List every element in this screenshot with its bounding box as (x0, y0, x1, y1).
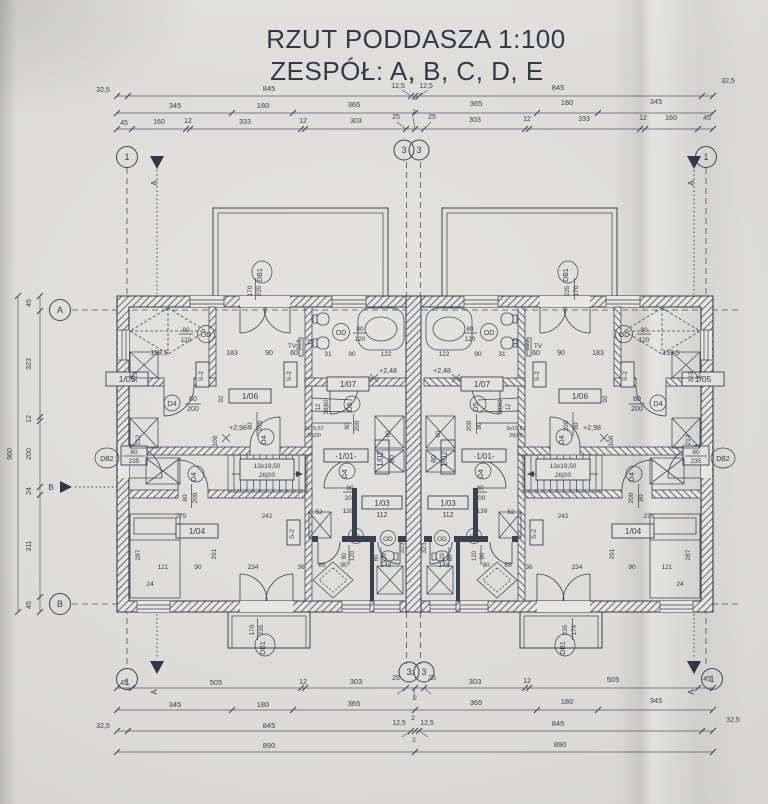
label-dims-left-6: 45 (26, 601, 33, 609)
bed-pillow (134, 518, 176, 534)
label-doors-d4-w: 80 (476, 485, 484, 492)
label-doors-db1-h: 235 (564, 285, 571, 296)
label-dims-i-v121: 121 (662, 564, 673, 571)
label-dims-left-0: 45 (26, 299, 33, 307)
label-dims-top3-5: 303 (350, 118, 362, 125)
label-doors-d4-h: 200 (257, 420, 264, 431)
label-doors-db1-h: 235 (256, 285, 263, 296)
label-dims-i-v52: 52 (507, 509, 515, 516)
label-dims-i-v139: 139 (477, 508, 488, 515)
label-doors-db2-w: 80 (130, 449, 138, 456)
label-doors-od-w: 80 (480, 552, 486, 559)
label-dims-bot1-8: 12 (523, 678, 531, 685)
label-rooms-r102: 1/02 (376, 451, 385, 467)
label-dims-i-v148: 148 (439, 562, 450, 569)
label-doors-d4-code: D4 (259, 435, 268, 445)
label-stairs-main-tread: 26|00 (259, 472, 276, 479)
label-dims-i-v159: 159,5 (150, 350, 168, 357)
label-doors-od-h: 120 (465, 336, 476, 343)
label-dims-i-v92: 92 (218, 395, 225, 403)
label-dims-bot2-2: 365 (348, 699, 361, 708)
label-doors-d4-h: 200 (187, 406, 199, 413)
label-dims-top2-1: 180 (257, 101, 270, 110)
label-dims-i-v223: 223 (296, 339, 303, 350)
label-dims-top1-0: 32,5 (96, 87, 110, 94)
label-sections-a: A (150, 689, 159, 695)
label-dims-i-v275: 275 (644, 513, 655, 520)
label-dims-i-v80: 80 (431, 455, 438, 463)
label-dims-top3-6: 25 (392, 114, 400, 121)
label-dims-i-v242: 242 (558, 513, 569, 520)
toilet (317, 313, 329, 325)
label-doors-d5-h: 200 (354, 420, 361, 431)
label-doors-d4-code: D4 (627, 472, 636, 482)
label-dims-i-v36: 36 (297, 564, 305, 571)
label-dims-i-v3860: 38|60 (498, 399, 504, 415)
label-dims-i-v323: 323 (399, 542, 406, 553)
label-dims-i-v148: 148 (381, 562, 392, 569)
label-doors-d4-w: 80 (182, 494, 189, 502)
label-doors-od-h: 120 (350, 550, 356, 561)
label-doors-db1-w: 170 (571, 624, 578, 635)
label-dims-i-v242: 242 (262, 513, 273, 520)
label-doors-od-h: 120 (472, 550, 478, 561)
label-stairs-main-tread: 26|00 (555, 472, 572, 479)
label-dims-bot1-9: 505 (607, 675, 620, 684)
section-markers (60, 156, 701, 674)
label-dims-top2-6: 345 (650, 97, 663, 106)
label-dims-top1-4: 12,5 (419, 83, 433, 90)
label-dims-i-v112: 112 (442, 512, 453, 519)
label-dims-top3-0: 45 (120, 120, 128, 127)
label-rooms-r107: 1/07 (340, 379, 357, 389)
label-dims-bot1-7: 303 (469, 677, 482, 686)
label-dims-bot2-6: 345 (650, 696, 663, 705)
label-levels-upper: +2,98 (229, 425, 247, 432)
label-doors-db1-code: DB1 (260, 641, 267, 655)
label-doors-od-code: OD (351, 534, 361, 541)
label-dims-i-v287: 287 (135, 549, 142, 560)
label-doors-db1-code: DB1 (560, 641, 567, 655)
label-misc-s2: S-2 (286, 371, 293, 382)
label-dims-i-v159: 159,5 (662, 350, 680, 357)
stair-arrow (296, 471, 303, 477)
label-doors-od-w: 80 (342, 552, 348, 559)
label-dims-top1-5: 845 (552, 83, 565, 92)
label-doors-od-w: 80 (640, 327, 648, 334)
label-dims-bot1-5: 2 (411, 670, 415, 677)
label-doors-d4-h: 200 (628, 492, 635, 503)
label-doors-od-w: 80 (356, 326, 364, 333)
bidet (317, 337, 329, 349)
label-doors-d4-h: 200 (345, 495, 356, 502)
label-dims-i-v291: 291 (609, 548, 616, 559)
label-dims-top2-0: 345 (169, 101, 182, 110)
label-dims-i-v12: 12 (307, 338, 314, 346)
label-dims-i-v122: 122 (439, 351, 450, 358)
label-dims-i-v52: 52 (315, 509, 323, 516)
label-dims-bot3-5: 845 (552, 719, 565, 728)
label-doors-od-code: OD (336, 330, 347, 337)
label-dims-top1-3: 2 (410, 78, 414, 85)
label-sections-a: A (150, 180, 159, 186)
label-misc-s2: S-2 (622, 371, 629, 382)
label-misc-s2: S-2 (289, 529, 296, 540)
label-doors-d4-code: D4 (653, 399, 663, 408)
unit-left (95, 261, 406, 656)
label-dims-i-v212: 212 (685, 434, 692, 445)
label-dims-top3-10: 12 (523, 116, 531, 123)
label-dims-i-v90: 90 (340, 562, 348, 569)
label-doors-db1-h: 235 (562, 624, 569, 635)
label-doors-d4-w: 80 (346, 485, 354, 492)
label-doors-d4-w: 80 (189, 396, 197, 403)
label-dims-bot3-1: 845 (263, 721, 276, 730)
label-dims-bot2-3: 2 (413, 695, 417, 702)
level-mark (222, 434, 230, 442)
label-axes-n3: 3 (421, 667, 426, 677)
label-dims-i-v122: 122 (381, 351, 392, 358)
label-doors-d4-w: 80 (638, 494, 645, 502)
label-doors-db2-h: 235 (691, 458, 702, 465)
label-levels-upper: +2,98 (583, 425, 601, 432)
entrance-door-leaf (240, 574, 267, 601)
label-levels-lower: +2,48 (433, 368, 451, 375)
label-dims-i-v65: 65 (318, 562, 326, 569)
label-doors-d4-h: 200 (563, 420, 570, 431)
label-doors-od-h: 120 (639, 337, 650, 344)
label-doors-db2-h: 235 (129, 458, 140, 465)
label-doors-db2-code: DB2 (716, 456, 730, 463)
label-dims-bot4-2: 890 (554, 740, 567, 749)
label-dims-i-v287: 287 (685, 549, 692, 560)
label-dims-top1-1: 845 (263, 84, 276, 93)
label-dims-i-v234: 234 (248, 564, 259, 571)
label-dims-top3-12: 12 (639, 115, 647, 122)
label-dims-bot3-3: 2 (411, 715, 415, 722)
label-doors-od-code: OD (201, 332, 212, 339)
label-dims-top2-3: 2 (413, 95, 417, 102)
label-dims-i-v90: 90 (194, 564, 202, 571)
label-dims-top3-2: 12 (184, 118, 192, 125)
label-axes-n3: 3 (401, 145, 406, 155)
label-dims-i-v80: 80 (389, 455, 396, 463)
label-dims-top3-4: 12 (299, 118, 307, 125)
label-sections-b: B (48, 483, 53, 492)
label-stairs-winder-tread: 26|00 (509, 433, 523, 439)
label-title-line1: RZUT PODDASZA 1:100 (266, 24, 565, 54)
label-stairs-winder-steps: 3x15,67 (506, 426, 526, 432)
label-dims-i-v183: 183 (226, 350, 238, 357)
label-axes-b: B (57, 599, 63, 609)
label-dims-bot3-0: 32,5 (96, 723, 110, 730)
label-dims-top3-7: 2 (412, 109, 416, 116)
label-sections-a: A (687, 180, 696, 186)
label-doors-d5-code: D5 (471, 402, 480, 412)
label-axes-a: A (57, 305, 63, 315)
label-dims-bot1-2: 12 (299, 679, 307, 686)
label-dims-bot2-5: 180 (561, 697, 574, 706)
label-rooms-r105: 1/05 (695, 374, 712, 384)
blueprint-paper: RZUT PODDASZA 1:100ZESPÓŁ: A, B, C, D, E… (0, 0, 768, 804)
label-axes-n1: 1 (709, 674, 714, 684)
label-dims-i-v3860: 38|60 (324, 399, 330, 415)
label-dims-i-v100: 100 (608, 435, 615, 446)
label-rooms-r101: -1/01- (336, 452, 357, 461)
label-sections-a: A (687, 689, 696, 695)
label-doors-d4-w: 80 (247, 422, 254, 430)
label-dims-left-1: 323 (26, 358, 33, 370)
label-dims-i-v223: 223 (524, 339, 531, 350)
label-doors-d4-code: D4 (340, 469, 349, 479)
label-dims-i-v100: 100 (212, 435, 219, 446)
label-dims-bot1-6: 25 (428, 675, 436, 682)
label-dims-i-v323: 323 (688, 371, 695, 382)
label-doors-od-w: 80 (448, 554, 454, 561)
label-dims-i-v139: 139 (343, 508, 354, 515)
label-doors-db1-w: 170 (249, 624, 256, 635)
label-doors-db1-h: 235 (258, 624, 265, 635)
label-dims-top2-4: 365 (470, 99, 483, 108)
label-dims-i-v234: 234 (572, 564, 583, 571)
label-dims-i-v92: 92 (602, 395, 609, 403)
label-dims-top3-1: 160 (153, 119, 165, 126)
label-dims-i-v60: 60 (532, 350, 540, 357)
label-dims-top1-6: 32,5 (721, 78, 735, 85)
label-dims-i-v90: 90 (628, 564, 636, 571)
label-rooms-r104: 1/04 (189, 526, 206, 536)
label-dims-bot4-1: 2 (412, 737, 416, 744)
label-dims-i-v90: 90 (557, 350, 565, 357)
label-dims-i-v60: 60 (386, 430, 392, 437)
label-stairs-main-steps: 13x19,50 (254, 463, 281, 470)
label-dims-i-v90: 90 (482, 562, 490, 569)
label-dims-top3-11: 333 (578, 116, 590, 123)
label-doors-d4-h: 200 (475, 495, 486, 502)
label-stairs-winder-steps: 3x15,67 (304, 426, 324, 432)
label-dims-top2-5: 180 (561, 98, 574, 107)
label-levels-lower: +2,48 (379, 368, 397, 375)
label-dims-top3-14: 45 (703, 115, 711, 122)
label-dims-i-v24: 24 (146, 581, 154, 588)
label-rooms-r102: 1/02 (440, 451, 449, 467)
label-title-line2: ZESPÓŁ: A, B, C, D, E (270, 56, 543, 86)
label-dims-i-v12: 12 (506, 403, 512, 410)
party-wall (406, 296, 421, 612)
label-rooms-r107: 1/07 (474, 379, 491, 389)
label-stairs-main-steps: 13x19,50 (550, 463, 577, 470)
label-dims-bot3-2: 12,5 (392, 720, 406, 727)
label-doors-d5-w: 80 (344, 422, 351, 430)
label-dims-top3-13: 160 (665, 115, 677, 122)
label-dims-bot1-3: 303 (350, 677, 363, 686)
label-dims-i-v65: 65 (504, 562, 512, 569)
label-doors-d4-code: D4 (189, 472, 198, 482)
label-rooms-r103: 1/03 (440, 499, 456, 508)
label-doors-od-w: 80 (182, 327, 190, 334)
label-dims-i-v275: 275 (176, 513, 187, 520)
label-dims-bot1-1: 505 (210, 678, 223, 687)
label-dims-i-v36: 36 (525, 564, 533, 571)
label-doors-db1-w: 170 (247, 285, 254, 296)
label-dims-i-v12: 12 (513, 338, 520, 346)
label-dims-i-v12: 12 (316, 403, 322, 410)
label-doors-db2-code: DB2 (100, 456, 114, 463)
label-dims-i-v112: 112 (376, 512, 387, 519)
label-rooms-r104: 1/04 (625, 526, 642, 536)
label-doors-od-w: 80 (466, 326, 474, 333)
label-doors-d5-w: 80 (476, 422, 483, 430)
label-dims-i-v31: 31 (324, 351, 332, 358)
label-dims-left-2: 12 (26, 415, 33, 423)
label-doors-d4-code: D4 (167, 399, 177, 408)
label-axes-n1: 1 (124, 677, 129, 687)
label-rooms-r101: -1/01- (474, 452, 495, 461)
label-dims-i-v212: 212 (135, 434, 142, 445)
label-dims-i-v90: 90 (348, 351, 356, 358)
label-dims-top1-2: 12,5 (391, 83, 405, 90)
label-doors-d4-w: 80 (573, 422, 580, 430)
label-doors-od-w: 80 (374, 554, 380, 561)
label-dims-i-v24: 24 (676, 581, 684, 588)
label-dims-i-v90: 90 (474, 351, 482, 358)
label-doors-od-h: 120 (355, 336, 366, 343)
label-doors-d5-code: D5 (345, 402, 354, 412)
label-doors-d4-w: 80 (633, 396, 641, 403)
label-dims-top2-2: 365 (348, 100, 361, 109)
label-doors-db1-w: 170 (573, 285, 580, 296)
label-dims-i-v323: 323 (421, 542, 428, 553)
label-dims-i-v323: 323 (132, 371, 139, 382)
label-axes-n3: 3 (406, 667, 411, 677)
label-dims-i-v31: 31 (498, 351, 506, 358)
label-dims-i-v121: 121 (158, 564, 169, 571)
label-dims-bot2-1: 180 (257, 700, 270, 709)
label-dims-bot3-4: 12,5 (420, 720, 434, 727)
label-misc-tv: TV (534, 343, 543, 350)
label-dims-bot1-4: 25 (392, 675, 400, 682)
label-doors-od-code: OD (437, 536, 447, 543)
label-dims-i-v90: 90 (265, 350, 273, 357)
label-doors-db1-code: DB1 (257, 268, 264, 282)
unit-right (424, 261, 735, 656)
label-dims-left_total: 960 (7, 448, 14, 460)
label-doors-db1-code: DB1 (563, 268, 570, 282)
label-dims-bot3-6: 32,5 (726, 717, 740, 724)
label-dims-top3-3: 333 (239, 119, 251, 126)
label-rooms-r103: 1/03 (374, 499, 390, 508)
label-dims-top3-9: 303 (469, 117, 481, 124)
label-misc-s2: S-2 (198, 371, 205, 382)
label-axes-n1: 1 (703, 152, 708, 162)
label-dims-bot4-0: 890 (263, 741, 276, 750)
label-dims-i-v60: 60 (436, 430, 442, 437)
label-axes-n1: 1 (124, 152, 129, 162)
label-dims-left-3: 200 (26, 448, 33, 460)
label-doors-d4-code: D4 (476, 469, 485, 479)
terrace-door-leaf (240, 307, 266, 333)
attic-floor-plan: RZUT PODDASZA 1:100ZESPÓŁ: A, B, C, D, E… (0, 0, 768, 804)
label-doors-od-code: OD (469, 534, 479, 541)
label-stairs-winder-tread: 26|00 (307, 433, 321, 439)
label-dims-bot2-4: 365 (470, 698, 483, 707)
label-dims-i-v183: 183 (592, 350, 604, 357)
label-doors-d4-h: 200 (631, 406, 643, 413)
label-doors-d5-h: 200 (466, 420, 473, 431)
label-axes-n3: 3 (416, 145, 421, 155)
label-misc-s2: S-2 (534, 371, 541, 382)
label-dims-i-v291: 291 (211, 548, 218, 559)
label-doors-d4-h: 200 (192, 492, 199, 503)
bath-door-1 (318, 542, 340, 564)
label-dims-bot2-0: 345 (169, 700, 182, 709)
label-doors-od-code: OD (383, 536, 393, 543)
label-doors-od-h: 120 (181, 337, 192, 344)
label-dims-top3-8: 25 (428, 114, 436, 121)
label-dims-left-4: 24 (26, 487, 33, 495)
label-doors-od-code: OD (484, 330, 495, 337)
label-doors-d4-code: D4 (557, 435, 566, 445)
label-rooms-r106: 1/06 (242, 391, 259, 401)
label-dims-left-5: 311 (26, 540, 33, 551)
label-doors-db2-w: 80 (692, 449, 700, 456)
label-misc-s2: S-2 (531, 529, 538, 540)
label-doors-od-code: OD (619, 332, 630, 339)
label-rooms-r106: 1/06 (572, 391, 589, 401)
